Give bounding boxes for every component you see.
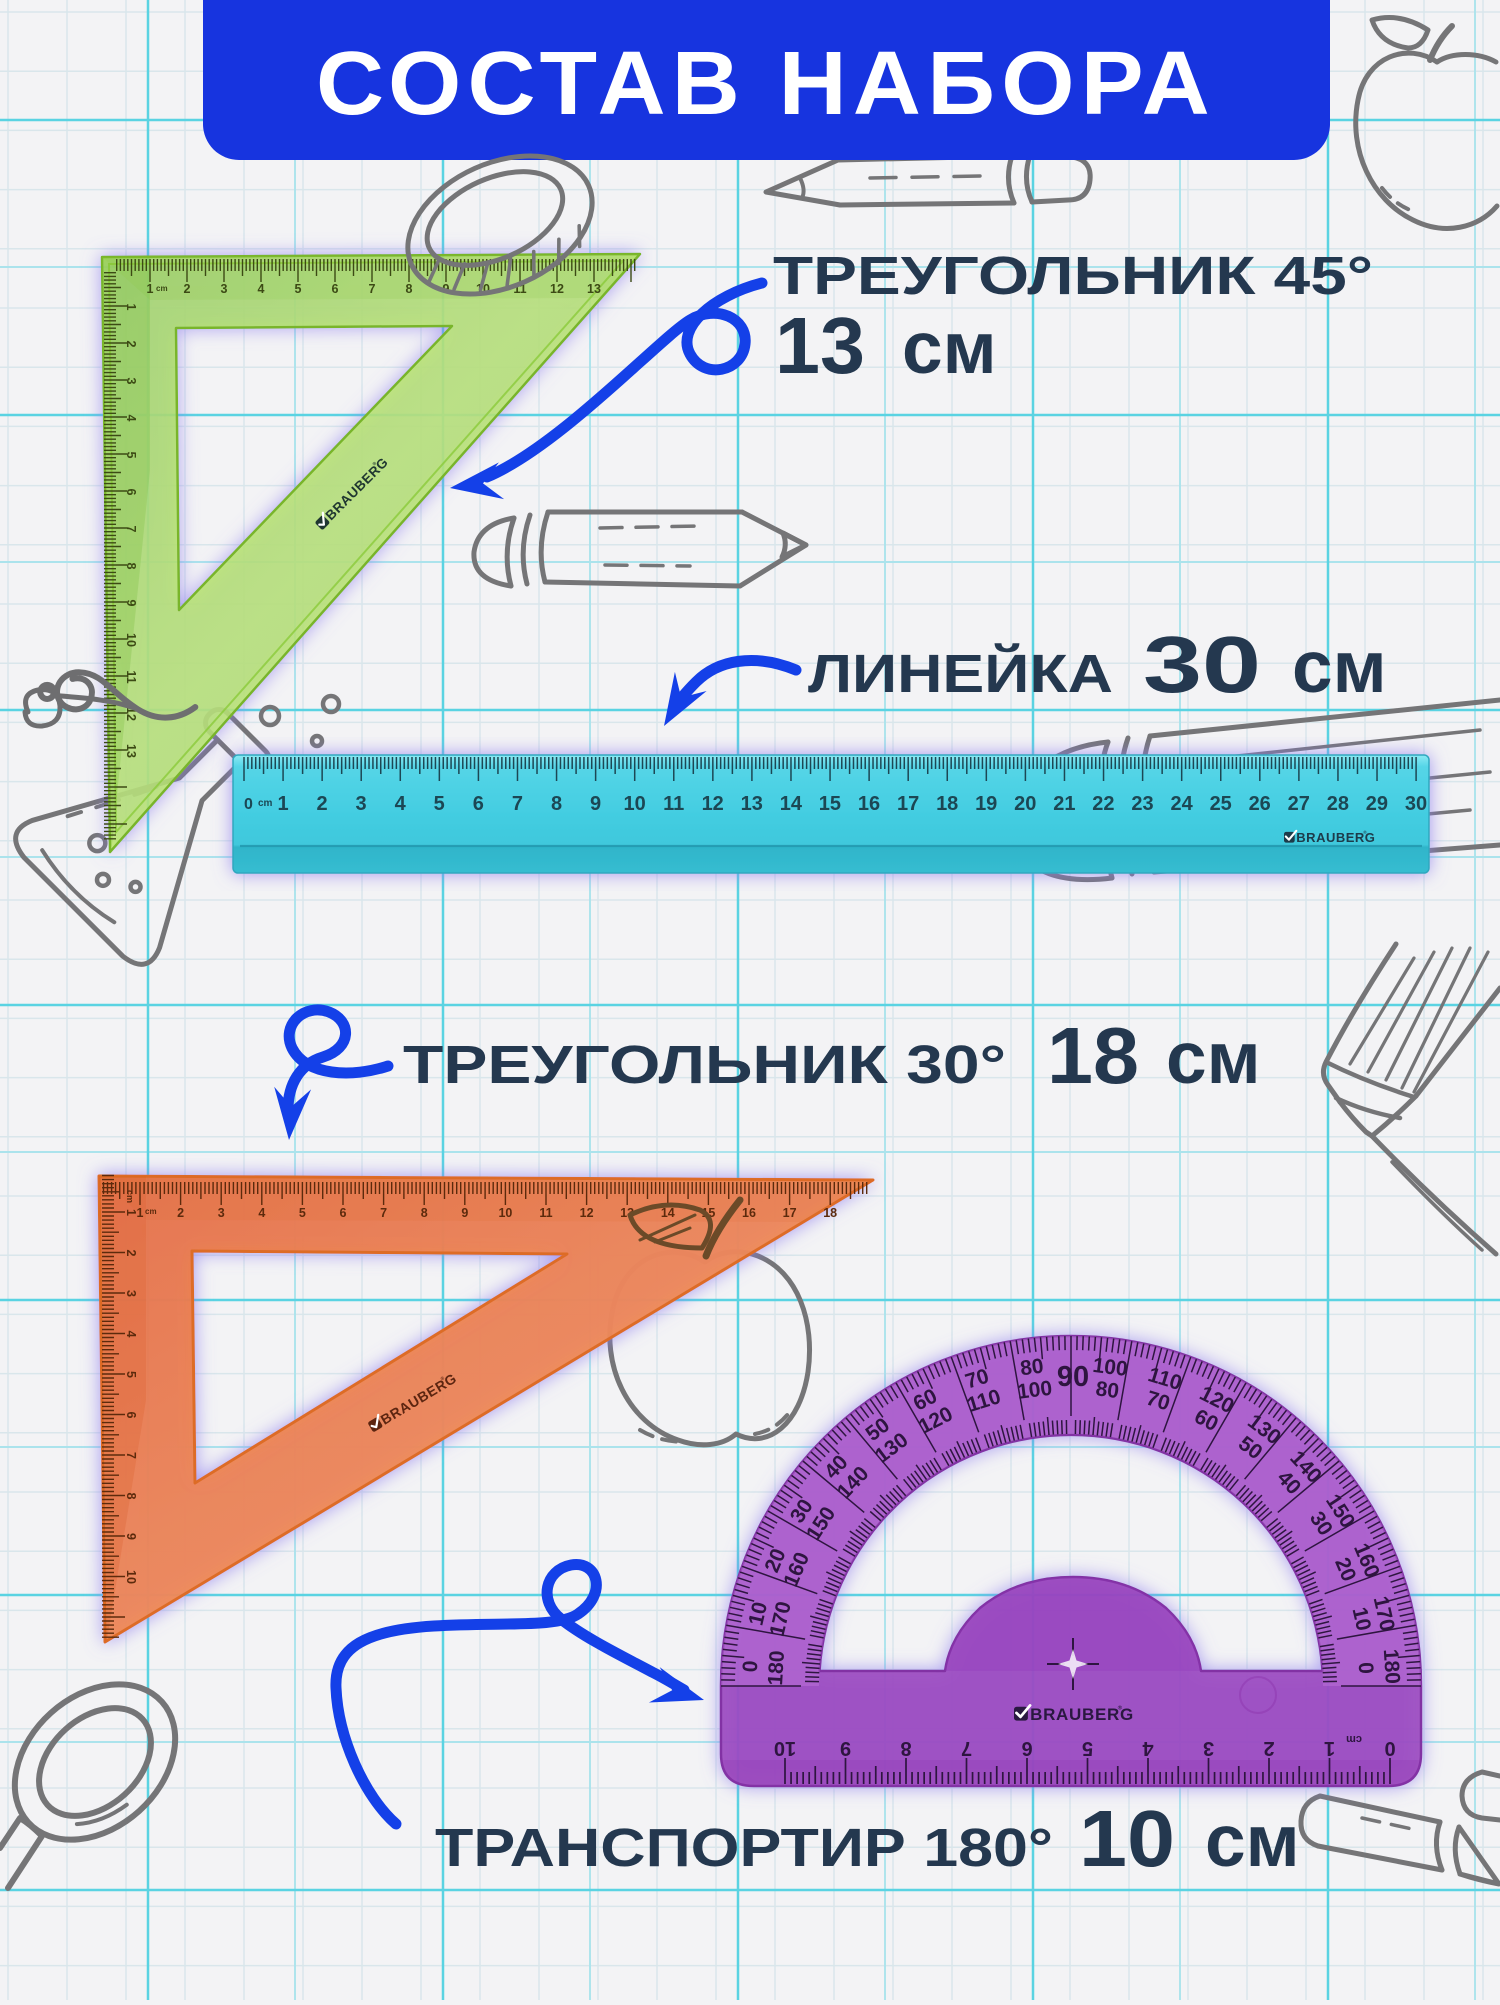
svg-text:16: 16: [858, 793, 880, 815]
svg-text:5: 5: [124, 1371, 138, 1378]
svg-text:0: 0: [739, 1660, 763, 1673]
svg-text:14: 14: [661, 1206, 675, 1220]
svg-text:2: 2: [184, 282, 191, 296]
svg-text:7: 7: [512, 793, 523, 815]
svg-text:19: 19: [975, 793, 997, 815]
svg-text:24: 24: [1170, 793, 1193, 815]
svg-text:1: 1: [124, 304, 138, 311]
svg-text:6: 6: [124, 1412, 138, 1419]
svg-text:см: см: [902, 308, 997, 389]
svg-text:12: 12: [580, 1206, 594, 1220]
svg-text:1: 1: [277, 793, 288, 815]
svg-text:0: 0: [244, 796, 253, 813]
svg-text:2: 2: [316, 793, 327, 815]
svg-text:8: 8: [421, 1206, 428, 1220]
svg-text:8: 8: [124, 1493, 138, 1500]
svg-text:7: 7: [380, 1206, 387, 1220]
svg-text:7: 7: [369, 282, 376, 296]
svg-text:ТРЕУГОЛЬНИК 30°: ТРЕУГОЛЬНИК 30°: [403, 1035, 1006, 1095]
svg-text:1: 1: [124, 1209, 138, 1216]
svg-text:13: 13: [587, 282, 601, 296]
svg-text:80: 80: [1019, 1355, 1045, 1381]
svg-text:см: см: [1292, 627, 1387, 708]
svg-text:ЛИНЕЙКА: ЛИНЕЙКА: [808, 643, 1113, 704]
svg-text:10: 10: [498, 1206, 512, 1220]
svg-text:5: 5: [124, 452, 138, 459]
svg-text:11: 11: [124, 670, 138, 683]
svg-text:13: 13: [775, 301, 865, 390]
svg-text:1: 1: [147, 282, 154, 296]
svg-text:8: 8: [551, 793, 562, 815]
svg-text:9: 9: [124, 600, 138, 607]
svg-text:14: 14: [780, 793, 803, 815]
svg-text:5: 5: [434, 793, 445, 815]
svg-text:3: 3: [218, 1206, 225, 1220]
svg-text:5: 5: [299, 1206, 306, 1220]
svg-text:6: 6: [340, 1206, 347, 1220]
svg-text:3: 3: [1203, 1737, 1214, 1759]
svg-text:9: 9: [461, 1206, 468, 1220]
svg-text:cm: cm: [1346, 1733, 1362, 1745]
svg-text:4: 4: [1142, 1737, 1154, 1759]
svg-text:10: 10: [774, 1737, 796, 1759]
svg-text:СОСТАВ НАБОРА: СОСТАВ НАБОРА: [316, 34, 1216, 134]
svg-text:12: 12: [702, 793, 724, 815]
svg-text:8: 8: [900, 1737, 911, 1759]
svg-text:23: 23: [1131, 793, 1153, 815]
svg-text:22: 22: [1092, 793, 1114, 815]
svg-text:6: 6: [1021, 1737, 1032, 1759]
svg-text:17: 17: [897, 793, 919, 815]
svg-text:30: 30: [1143, 620, 1261, 709]
svg-text:80: 80: [1094, 1377, 1120, 1403]
svg-text:28: 28: [1327, 793, 1349, 815]
svg-text:см: см: [1205, 1801, 1300, 1882]
svg-text:6: 6: [332, 282, 339, 296]
svg-text:18: 18: [1047, 1011, 1139, 1100]
svg-text:15: 15: [819, 793, 841, 815]
svg-text:0: 0: [1354, 1662, 1378, 1675]
svg-text:0: 0: [1384, 1737, 1395, 1759]
svg-text:cm: cm: [145, 1207, 157, 1216]
svg-text:16: 16: [742, 1206, 756, 1220]
svg-text:20: 20: [1014, 793, 1036, 815]
svg-text:10: 10: [623, 793, 645, 815]
svg-text:4: 4: [258, 1206, 265, 1220]
svg-text:4: 4: [395, 793, 407, 815]
svg-text:8: 8: [124, 563, 138, 570]
svg-text:cm: cm: [156, 284, 168, 293]
svg-text:7: 7: [961, 1737, 972, 1759]
svg-text:26: 26: [1249, 793, 1271, 815]
svg-text:21: 21: [1053, 793, 1075, 815]
svg-text:7: 7: [124, 1452, 138, 1459]
svg-text:6: 6: [124, 489, 138, 496]
svg-text:12: 12: [550, 282, 564, 296]
svg-text:9: 9: [840, 1737, 851, 1759]
svg-text:90: 90: [1057, 1361, 1089, 1393]
svg-text:180: 180: [1379, 1648, 1404, 1684]
svg-text:180: 180: [764, 1650, 789, 1686]
svg-text:1: 1: [1324, 1737, 1335, 1759]
svg-text:2: 2: [177, 1206, 184, 1220]
svg-text:10: 10: [124, 1570, 138, 1584]
svg-text:cm: cm: [258, 798, 273, 809]
svg-text:10: 10: [1079, 1794, 1175, 1883]
svg-text:27: 27: [1288, 793, 1310, 815]
svg-text:4: 4: [124, 1331, 138, 1338]
svg-text:8: 8: [406, 282, 413, 296]
svg-text:13: 13: [741, 793, 763, 815]
svg-text:10: 10: [124, 633, 138, 647]
svg-text:ТРАНСПОРТИР 180°: ТРАНСПОРТИР 180°: [435, 1818, 1053, 1878]
svg-text:cm: cm: [125, 1190, 135, 1203]
svg-text:30: 30: [1405, 793, 1427, 815]
svg-text:2: 2: [124, 341, 138, 348]
svg-text:3: 3: [221, 282, 228, 296]
svg-text:13: 13: [124, 744, 138, 758]
svg-text:2: 2: [124, 1250, 138, 1257]
svg-text:11: 11: [663, 793, 684, 815]
svg-text:4: 4: [258, 282, 265, 296]
svg-text:3: 3: [356, 793, 367, 815]
svg-text:см: см: [1166, 1018, 1261, 1099]
svg-text:29: 29: [1366, 793, 1388, 815]
svg-text:2: 2: [1263, 1737, 1274, 1759]
svg-text:100: 100: [1016, 1377, 1054, 1404]
svg-text:18: 18: [823, 1206, 837, 1220]
svg-text:25: 25: [1210, 793, 1232, 815]
svg-text:9: 9: [590, 793, 601, 815]
svg-text:4: 4: [124, 415, 138, 422]
svg-text:3: 3: [124, 1290, 138, 1297]
svg-text:6: 6: [473, 793, 484, 815]
svg-text:11: 11: [539, 1206, 552, 1220]
svg-text:18: 18: [936, 793, 958, 815]
svg-text:®: ®: [1118, 1705, 1123, 1712]
svg-text:5: 5: [295, 282, 302, 296]
svg-text:9: 9: [124, 1533, 138, 1540]
svg-text:5: 5: [1082, 1737, 1093, 1759]
svg-text:3: 3: [124, 378, 138, 385]
svg-text:17: 17: [783, 1206, 797, 1220]
svg-text:ТРЕУГОЛЬНИК 45°: ТРЕУГОЛЬНИК 45°: [773, 246, 1373, 306]
svg-text:7: 7: [124, 526, 138, 533]
